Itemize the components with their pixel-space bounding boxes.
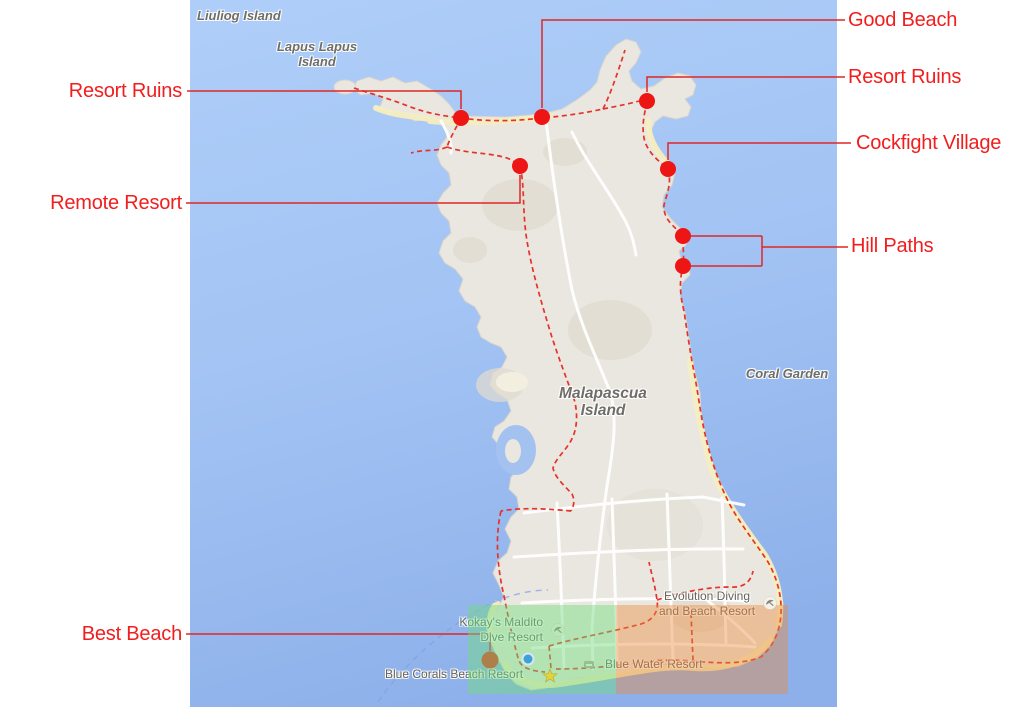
- good-beach-dot: [534, 109, 550, 125]
- annotation-hill-paths: Hill Paths: [851, 235, 933, 257]
- cockfight-village-dot: [660, 161, 676, 177]
- annotation-resort-ruins-east: Resort Ruins: [848, 66, 961, 88]
- annotation-resort-ruins-west: Resort Ruins: [0, 80, 182, 102]
- annotation-good-beach: Good Beach: [848, 9, 957, 31]
- resort-ruins-east-dot: [639, 93, 655, 109]
- lapus-islet: [334, 80, 356, 94]
- annotated-map-page: Liuliog Island Lapus LapusIsland Malapas…: [0, 0, 1024, 709]
- hill-path-dot-1: [675, 228, 691, 244]
- hill-path-dot-2: [675, 258, 691, 274]
- annotation-best-beach: Best Beach: [0, 623, 182, 645]
- map-image: [0, 0, 1024, 709]
- label-malapascua-island: MalapascuaIsland: [559, 386, 647, 419]
- remote-resort-dot: [512, 158, 528, 174]
- east-beach-zone-overlay: [616, 605, 788, 694]
- annotation-cockfight-village: Cockfight Village: [856, 132, 1001, 154]
- label-liuliog-island: Liuliog Island: [197, 8, 281, 23]
- annotation-remote-resort: Remote Resort: [0, 192, 182, 214]
- resort-ruins-west-dot: [453, 110, 469, 126]
- best-beach-zone-overlay: [468, 605, 616, 694]
- label-coral-garden: Coral Garden: [746, 366, 828, 381]
- label-lapus-lapus-island: Lapus LapusIsland: [277, 39, 357, 69]
